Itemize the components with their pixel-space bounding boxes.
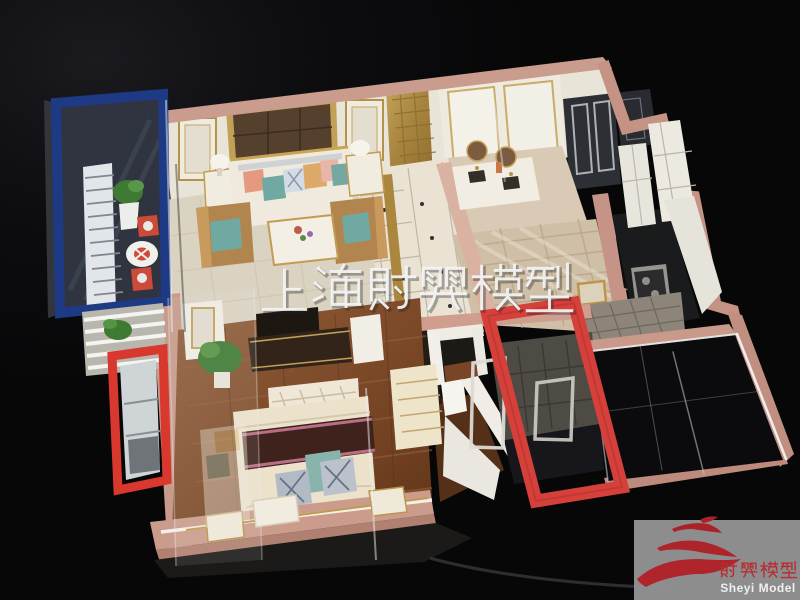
svg-text:Sheyi Model: Sheyi Model — [720, 581, 796, 595]
